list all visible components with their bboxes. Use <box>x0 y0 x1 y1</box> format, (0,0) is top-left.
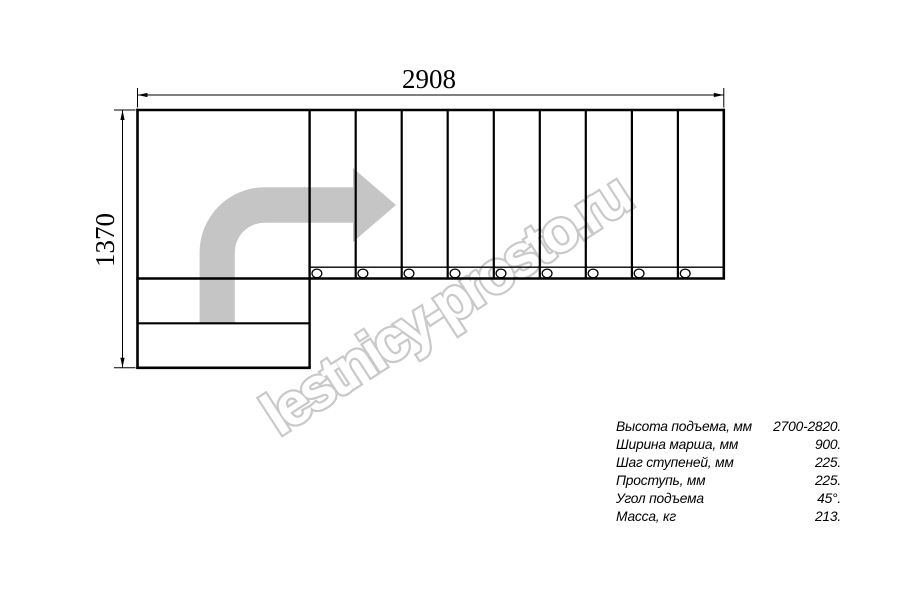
svg-text:Масса, кг: Масса, кг <box>616 509 676 524</box>
svg-text:225.: 225. <box>814 473 841 488</box>
svg-text:2700-2820.: 2700-2820. <box>772 419 841 434</box>
svg-text:225.: 225. <box>814 455 841 470</box>
svg-text:900.: 900. <box>815 437 841 452</box>
svg-text:Шаг ступеней, мм: Шаг ступеней, мм <box>616 455 734 470</box>
svg-text:Высота подъема, мм: Высота подъема, мм <box>616 419 753 434</box>
svg-text:Ширина марша, мм: Ширина марша, мм <box>616 437 739 452</box>
svg-text:1370: 1370 <box>90 213 120 267</box>
svg-text:Проступь, мм: Проступь, мм <box>616 473 706 488</box>
svg-text:Угол подъема: Угол подъема <box>615 491 704 506</box>
svg-text:45°.: 45°. <box>817 491 841 506</box>
svg-text:2908: 2908 <box>402 64 456 94</box>
svg-text:213.: 213. <box>814 509 841 524</box>
